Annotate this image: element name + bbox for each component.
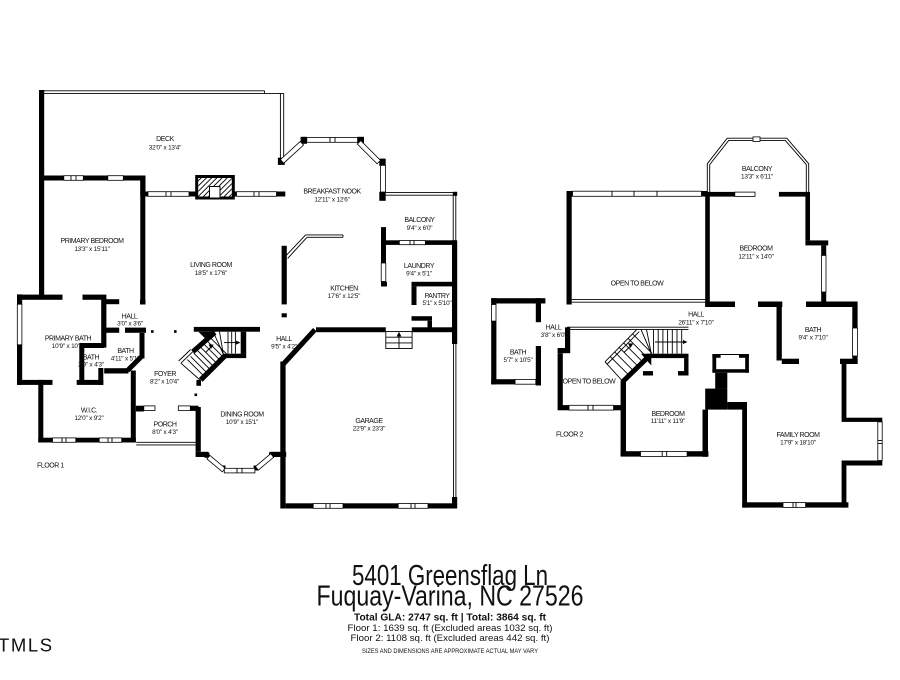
svg-text:BALCONY: BALCONY <box>404 217 435 224</box>
svg-text:FLOOR 1: FLOOR 1 <box>37 463 64 470</box>
svg-text:BATH: BATH <box>83 355 100 362</box>
svg-text:BATH: BATH <box>510 350 527 357</box>
svg-text:GARAGE: GARAGE <box>355 418 383 425</box>
svg-text:HALL: HALL <box>122 314 138 321</box>
svg-text:12'11" x 14'0": 12'11" x 14'0" <box>738 254 773 261</box>
svg-text:Floor 2: 1108 sq. ft (Excluded: Floor 2: 1108 sq. ft (Excluded areas 442… <box>351 633 550 644</box>
svg-text:OPEN TO BELOW: OPEN TO BELOW <box>611 281 664 288</box>
svg-text:PRIMARY BATH: PRIMARY BATH <box>45 336 92 343</box>
svg-text:TMLS: TMLS <box>0 635 54 656</box>
svg-text:FAMILY ROOM: FAMILY ROOM <box>776 432 820 439</box>
svg-text:FLOOR 2: FLOOR 2 <box>556 432 583 439</box>
svg-text:BEDROOM: BEDROOM <box>651 411 685 418</box>
svg-text:26'11" x 7'10": 26'11" x 7'10" <box>678 320 713 327</box>
svg-text:KITCHEN: KITCHEN <box>330 286 358 293</box>
svg-text:HALL: HALL <box>546 325 562 332</box>
svg-text:BREAKFAST NOOK: BREAKFAST NOOK <box>303 189 361 196</box>
svg-text:BATH: BATH <box>117 348 134 355</box>
svg-text:17'6" x 12'5": 17'6" x 12'5" <box>328 293 360 300</box>
svg-text:BATH: BATH <box>805 327 822 334</box>
svg-text:LIVING ROOM: LIVING ROOM <box>190 262 232 269</box>
svg-text:5'7" x 10'5": 5'7" x 10'5" <box>503 357 532 364</box>
svg-text:11'11" x 11'9": 11'11" x 11'9" <box>651 418 685 425</box>
svg-text:Fuquay-Varina, NC 27526: Fuquay-Varina, NC 27526 <box>317 581 584 613</box>
svg-text:W.I.C.: W.I.C. <box>81 408 98 415</box>
svg-text:18'5" x 17'6": 18'5" x 17'6" <box>195 270 227 277</box>
svg-text:BALCONY: BALCONY <box>742 166 773 173</box>
svg-text:HALL: HALL <box>276 336 292 343</box>
svg-text:3'0" x 3'6": 3'0" x 3'6" <box>117 321 143 328</box>
svg-text:17'9" x 18'10": 17'9" x 18'10" <box>780 440 816 447</box>
svg-text:HALL: HALL <box>688 312 704 319</box>
svg-text:DINING ROOM: DINING ROOM <box>220 412 264 419</box>
svg-text:9'4" x 7'10": 9'4" x 7'10" <box>798 335 827 342</box>
svg-text:12'11" x 12'6": 12'11" x 12'6" <box>314 197 349 204</box>
svg-text:SIZES AND DIMENSIONS ARE APPRO: SIZES AND DIMENSIONS ARE APPROXIMATE ACT… <box>362 648 538 655</box>
svg-text:PRIMARY BEDROOM: PRIMARY BEDROOM <box>60 238 124 245</box>
svg-text:FOYER: FOYER <box>154 371 176 378</box>
svg-text:PANTRY: PANTRY <box>424 293 450 300</box>
svg-text:9'4" x 6'0": 9'4" x 6'0" <box>407 225 433 232</box>
svg-text:9'4" x 5'1": 9'4" x 5'1" <box>406 271 432 278</box>
svg-text:13'3" x 6'11": 13'3" x 6'11" <box>741 174 773 181</box>
svg-text:5'1" x 5'10": 5'1" x 5'10" <box>422 300 451 307</box>
svg-text:32'0" x 13'4": 32'0" x 13'4" <box>149 145 181 152</box>
svg-text:DECK: DECK <box>156 136 174 143</box>
svg-text:10'9" x 15'1": 10'9" x 15'1" <box>226 419 258 426</box>
svg-text:9'5" x 4'2": 9'5" x 4'2" <box>271 344 297 351</box>
svg-text:BEDROOM: BEDROOM <box>739 246 773 253</box>
svg-text:PORCH: PORCH <box>153 422 176 429</box>
svg-text:LAUNDRY: LAUNDRY <box>404 263 435 270</box>
svg-text:8'0" x 4'3": 8'0" x 4'3" <box>152 429 178 436</box>
svg-text:22'9" x 23'3": 22'9" x 23'3" <box>353 426 385 433</box>
svg-text:2'9" x 4'3": 2'9" x 4'3" <box>78 362 104 369</box>
svg-text:13'3" x 15'11": 13'3" x 15'11" <box>74 246 109 253</box>
svg-text:12'0" x 9'2": 12'0" x 9'2" <box>74 415 103 422</box>
svg-text:3'8" x 6'0": 3'8" x 6'0" <box>541 332 567 339</box>
svg-text:8'2" x 10'4": 8'2" x 10'4" <box>150 379 179 386</box>
svg-text:OPEN TO BELOW: OPEN TO BELOW <box>563 379 616 386</box>
